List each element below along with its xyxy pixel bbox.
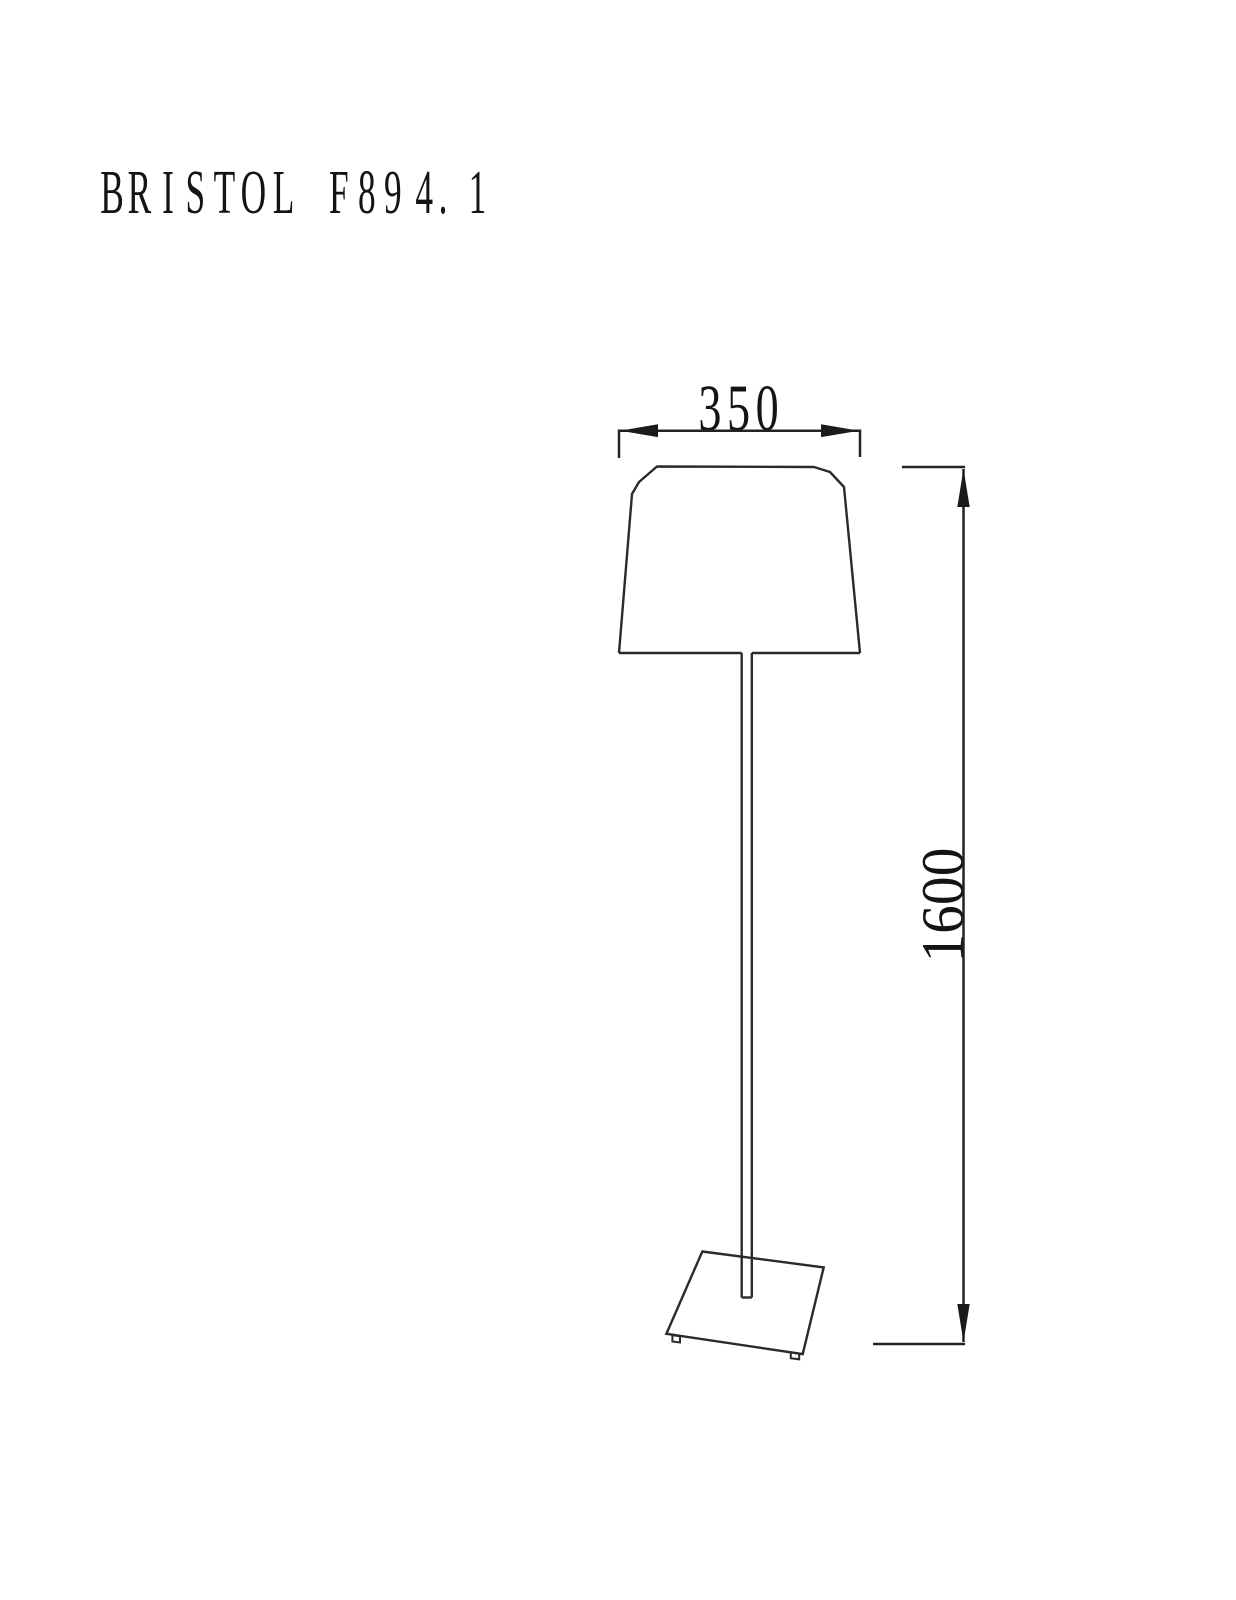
svg-text:1600: 1600 bbox=[909, 848, 976, 963]
svg-text:350: 350 bbox=[698, 372, 778, 445]
svg-text:BRISTOLF894.1: BRISTOLF894.1 bbox=[100, 158, 486, 227]
